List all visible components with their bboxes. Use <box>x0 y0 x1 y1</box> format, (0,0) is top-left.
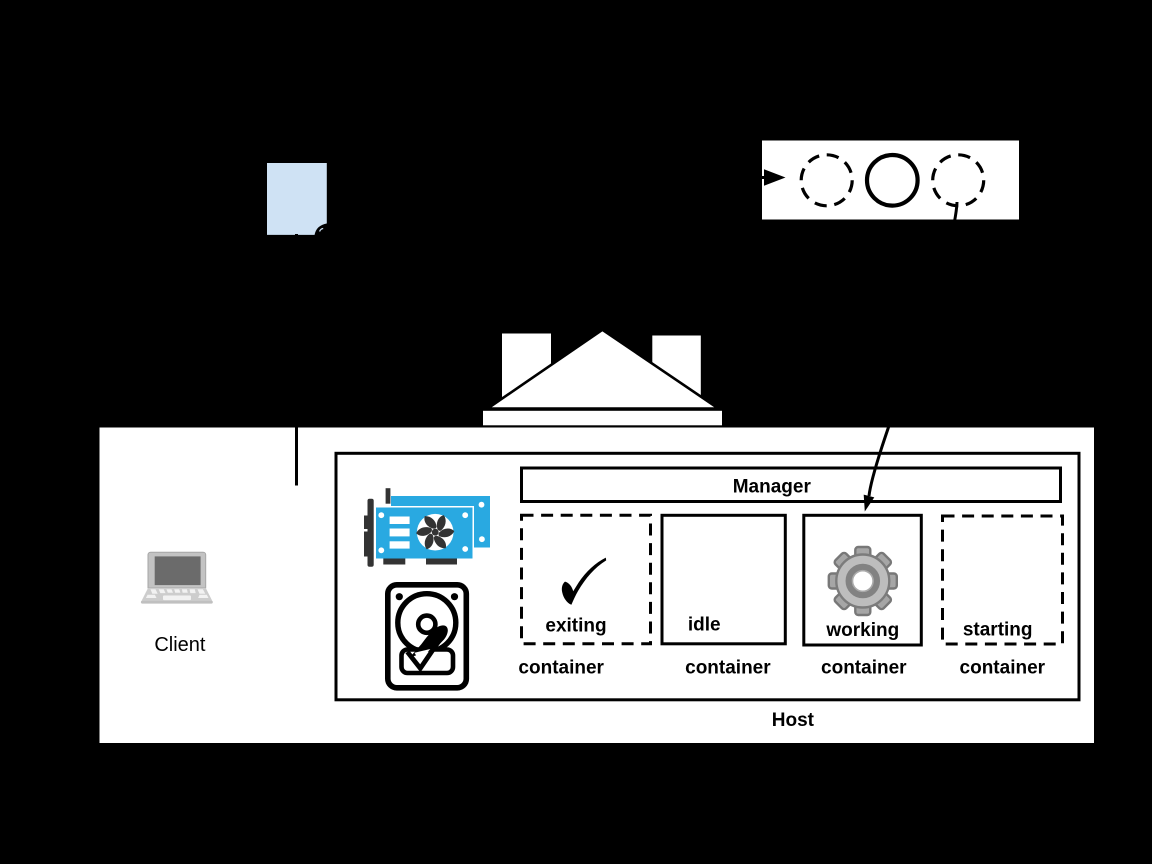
svg-text:container: container <box>821 657 907 678</box>
svg-text:starting: starting <box>963 620 1033 641</box>
svg-text:working: working <box>825 620 899 641</box>
svg-text:container: container <box>685 657 771 678</box>
svg-text:container: container <box>960 657 1046 678</box>
svg-text:exiting: exiting <box>545 616 606 637</box>
svg-text:idle: idle <box>688 615 721 636</box>
svg-text:Manager: Manager <box>733 476 812 497</box>
svg-text:Host: Host <box>772 710 815 731</box>
svg-text:container: container <box>518 657 604 678</box>
svg-text:Client: Client <box>154 634 206 656</box>
